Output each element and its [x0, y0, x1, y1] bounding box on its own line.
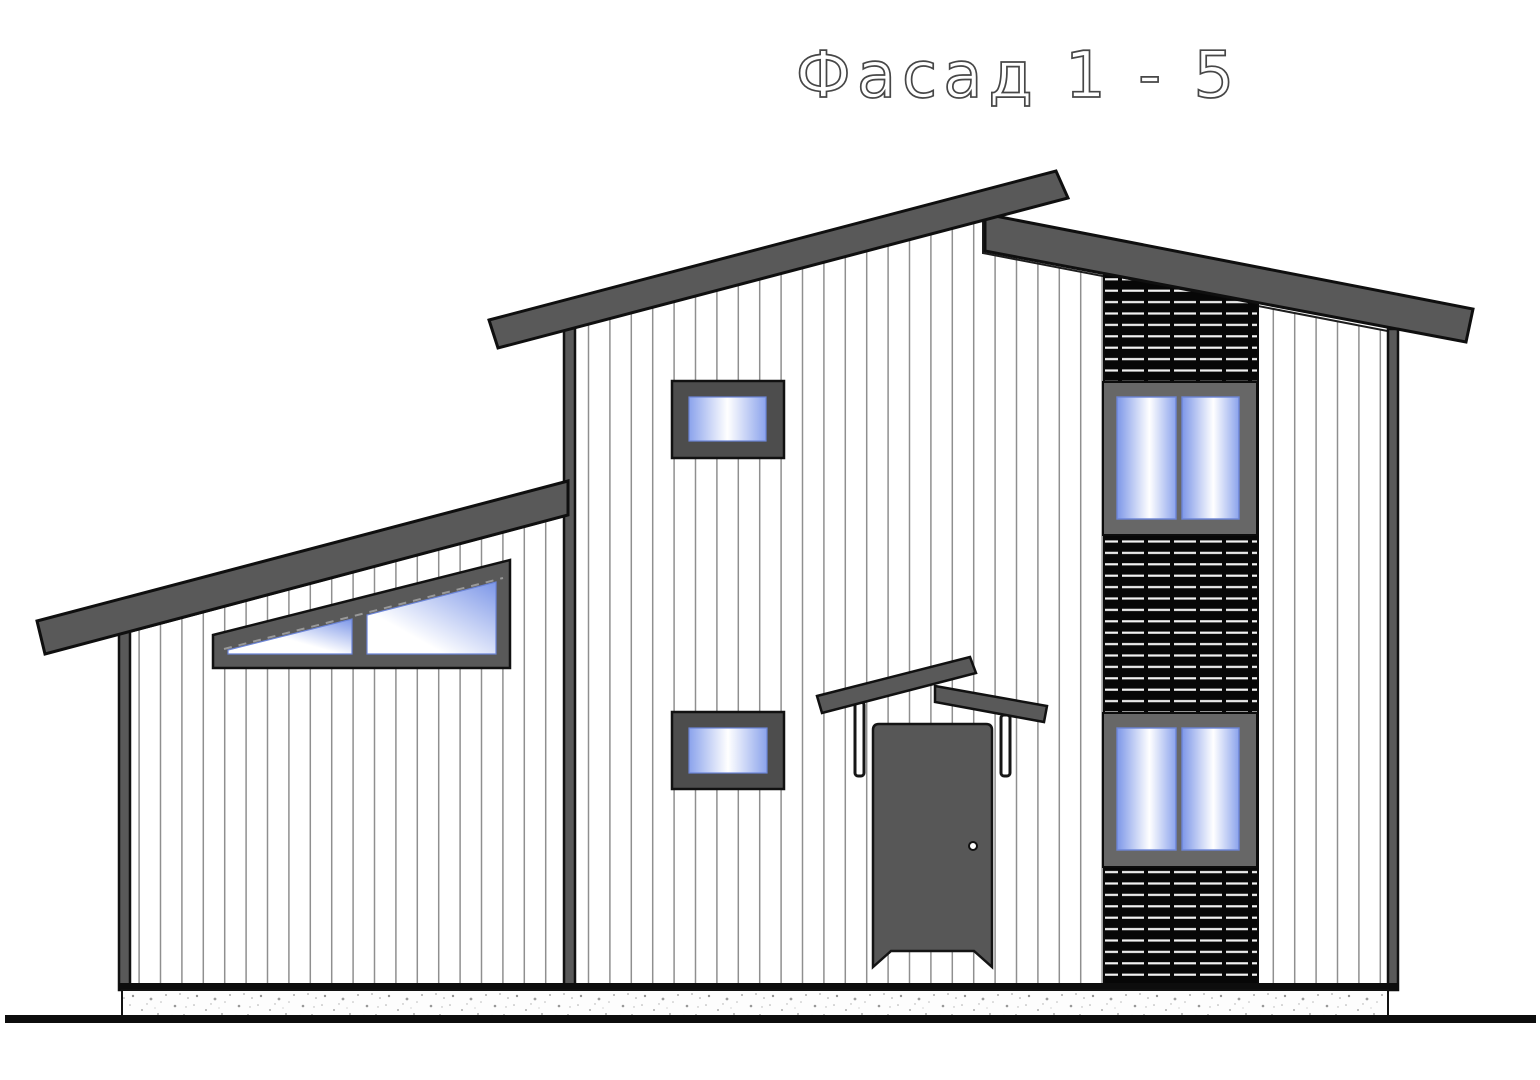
middle-joint-trim	[564, 326, 575, 990]
ground-line	[5, 1015, 1536, 1023]
left-corner-trim	[119, 630, 130, 990]
small-window-lower-glass	[689, 728, 767, 773]
elevation-drawing-sheet: Фасад 1 - 5	[0, 0, 1540, 1080]
strip-window-lower-pane-left	[1117, 728, 1176, 850]
strip-window-lower-pane-right	[1182, 728, 1239, 850]
drawing-title: Фасад 1 - 5	[796, 39, 1241, 113]
strip-window-upper	[1103, 382, 1257, 535]
small-window-upper-glass	[689, 397, 766, 441]
small-window-upper	[672, 381, 784, 458]
strip-window-upper-pane-right	[1182, 397, 1239, 519]
strip-window-lower	[1103, 713, 1257, 867]
strip-window-upper-pane-left	[1117, 397, 1176, 519]
canopy-support-right	[1001, 715, 1010, 776]
right-corner-trim	[1388, 329, 1398, 990]
canopy-support-left	[855, 702, 864, 776]
foundation-strip	[122, 990, 1388, 1016]
small-window-lower	[672, 712, 784, 789]
door-handle	[969, 842, 977, 850]
